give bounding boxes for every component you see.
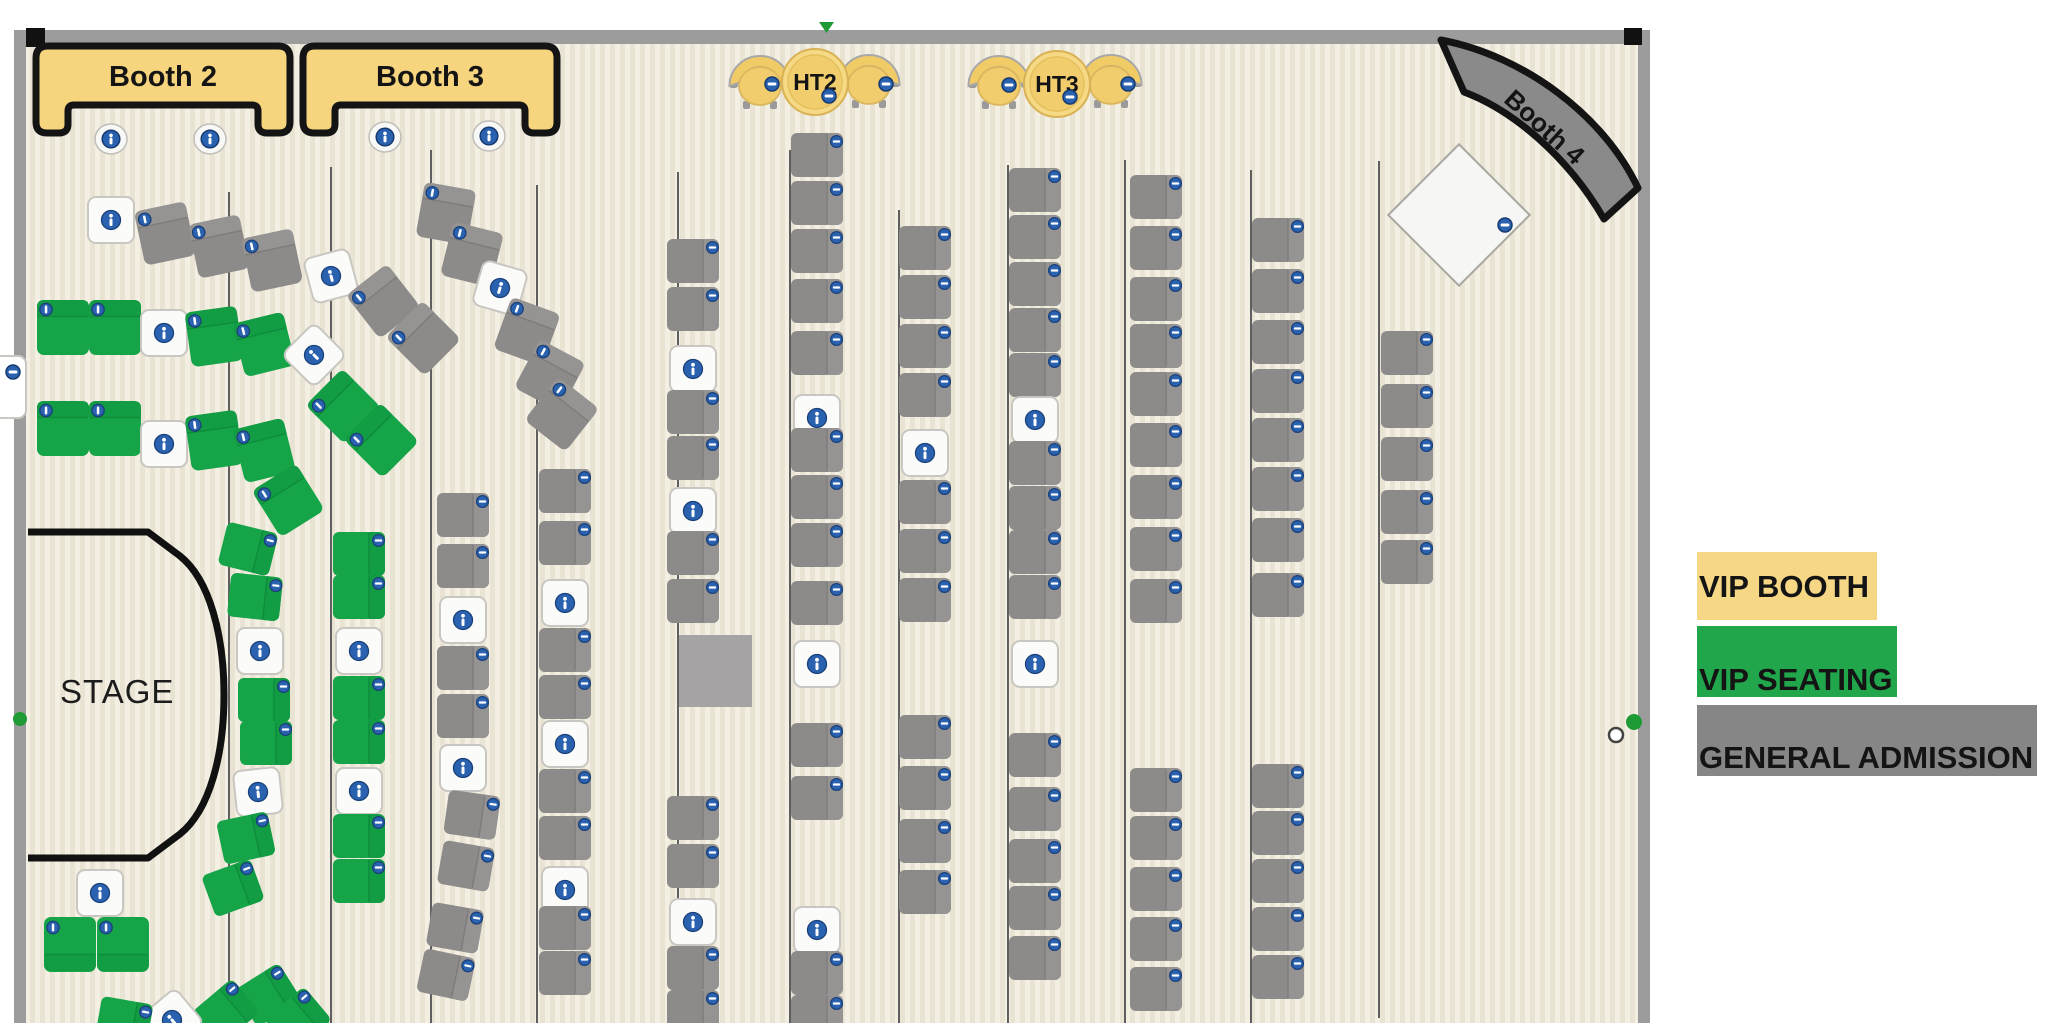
svg-text:VIP BOOTH: VIP BOOTH (1699, 569, 1869, 604)
svg-text:Booth 2: Booth 2 (109, 61, 217, 93)
svg-text:GENERAL ADMISSION: GENERAL ADMISSION (1699, 740, 2033, 775)
svg-text:STAGE: STAGE (60, 673, 174, 710)
svg-text:Booth 3: Booth 3 (376, 61, 484, 93)
svg-text:VIP SEATING: VIP SEATING (1699, 662, 1893, 697)
